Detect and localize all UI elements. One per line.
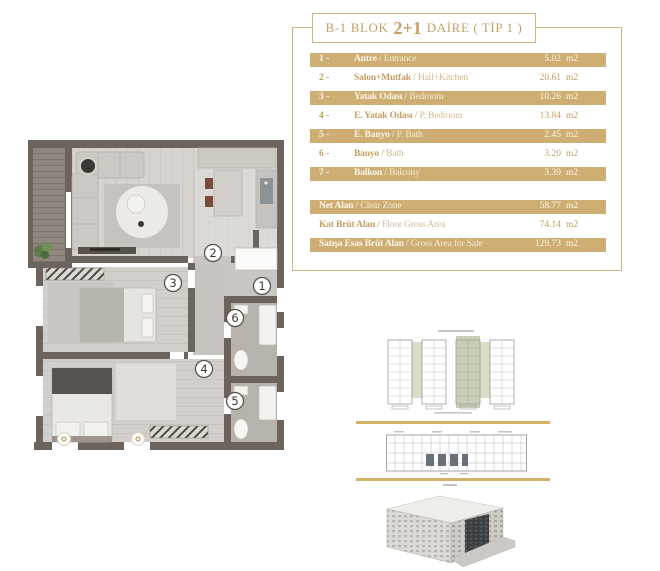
wall-sconce	[132, 433, 145, 446]
floor-plan: 2 1 3 6 4 5	[28, 136, 284, 454]
svg-text:3: 3	[169, 276, 176, 290]
svg-text:5: 5	[231, 394, 238, 408]
total-row: Satışa Esas Brüt Alan / Gross Area for S…	[310, 238, 606, 252]
unit-title-suffix: DAİRE ( TİP 1 )	[427, 20, 523, 36]
svg-text:4: 4	[200, 362, 207, 376]
area-row: 3 - Yatak Odası / Bedroom 10.26 m2	[310, 91, 606, 105]
wall-sconce	[58, 433, 71, 446]
room-number-badge: 1	[254, 278, 271, 295]
side-table	[138, 221, 144, 227]
totals-list: Net Alan / Clear Zone 58.77 m2 Kat Brüt …	[310, 200, 606, 257]
room-area-list: 1 - Antre / Entrance 5.02 m2 2 - Salon+M…	[310, 53, 606, 186]
area-row: 2 - Salon+Mutfak / Hall+Kitchen 20.61 m2	[310, 72, 606, 86]
entry-closet	[235, 248, 277, 270]
corridor-floor	[193, 265, 224, 355]
floor-lamp	[80, 158, 96, 174]
svg-text:1: 1	[258, 279, 265, 293]
caption-line	[438, 330, 474, 332]
coffee-table	[127, 195, 145, 213]
area-row: 5 - E. Banyo / P. Bath 2.45 m2	[310, 129, 606, 143]
unit-type: 2+1	[394, 18, 422, 39]
unit-title: B-1 BLOK 2+1 DAİRE ( TİP 1 )	[312, 13, 536, 43]
separator-line	[356, 421, 550, 424]
site-key-plan	[382, 334, 524, 414]
room-number-badge: 3	[165, 275, 182, 292]
room-number-badge: 4	[196, 361, 213, 378]
svg-text:6: 6	[231, 311, 238, 325]
area-row: 6 - Banyo / Bath 3.20 m2	[310, 148, 606, 162]
brochure-page: 2 1 3 6 4 5 B-1	[0, 0, 660, 571]
svg-text:2: 2	[209, 246, 216, 260]
total-row: Kat Brüt Alan / Floor Gross Area 74.14 m…	[310, 219, 606, 233]
highlighted-block	[456, 336, 480, 408]
area-row: 1 - Antre / Entrance 5.02 m2	[310, 53, 606, 67]
radiator	[46, 268, 104, 280]
area-row: 4 - E. Yatak Odası / P. Bedroom 13.84 m2	[310, 110, 606, 124]
room-number-badge: 5	[227, 393, 244, 410]
round-rug	[116, 186, 168, 238]
room-number-badge: 2	[205, 245, 222, 262]
tv	[90, 248, 120, 251]
double-bed	[52, 368, 112, 442]
radiator	[150, 426, 208, 438]
single-bed	[80, 288, 156, 342]
caption-line	[443, 484, 457, 486]
block-name: B-1 BLOK	[326, 20, 389, 36]
building-rendering	[379, 489, 517, 567]
room-number-badge: 6	[227, 310, 244, 327]
floor-key-plan	[386, 431, 527, 476]
separator-line	[356, 478, 550, 481]
total-row: Net Alan / Clear Zone 58.77 m2	[310, 200, 606, 214]
master-rug	[116, 364, 176, 420]
area-row: 7 - Balkon / Balcony 3.39 m2	[310, 167, 606, 181]
